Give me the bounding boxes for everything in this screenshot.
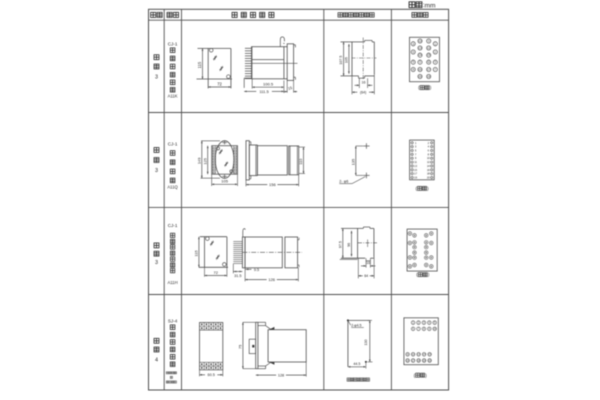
- svg-text:φ6: φ6: [344, 180, 349, 184]
- svg-text:111.5: 111.5: [259, 89, 269, 94]
- svg-text:9.5: 9.5: [254, 268, 259, 272]
- svg-text:3: 3: [155, 75, 158, 81]
- svg-text:97.5: 97.5: [338, 241, 342, 248]
- svg-text:149: 149: [196, 158, 201, 165]
- svg-text:128: 128: [278, 374, 284, 378]
- svg-text:96: 96: [347, 243, 351, 247]
- svg-text:156: 156: [269, 182, 276, 187]
- svg-text:72: 72: [217, 81, 222, 86]
- svg-text:31.5: 31.5: [234, 274, 241, 278]
- svg-text:3: 3: [155, 168, 158, 174]
- svg-text:A11K: A11K: [168, 94, 178, 99]
- svg-text:75: 75: [238, 345, 243, 349]
- svg-text:CJ-1: CJ-1: [168, 142, 178, 147]
- svg-text:SJ-4: SJ-4: [168, 319, 178, 324]
- svg-text:115: 115: [194, 249, 199, 256]
- svg-text:135: 135: [350, 159, 355, 166]
- svg-text:16: 16: [362, 80, 366, 84]
- svg-text:130: 130: [364, 339, 368, 345]
- svg-text:CJ-1: CJ-1: [168, 223, 178, 228]
- svg-text:(64): (64): [360, 91, 366, 95]
- svg-text:64: 64: [364, 274, 368, 278]
- svg-text:100.5: 100.5: [263, 82, 274, 87]
- svg-text:110: 110: [298, 158, 303, 165]
- svg-text:72: 72: [213, 270, 218, 275]
- svg-text:16: 16: [366, 261, 370, 265]
- svg-text:126: 126: [268, 277, 275, 282]
- svg-text:2-φ4.5: 2-φ4.5: [351, 324, 361, 328]
- svg-text:107.5: 107.5: [339, 56, 343, 65]
- svg-text:A11H: A11H: [168, 280, 178, 285]
- svg-text:A11Q: A11Q: [167, 184, 178, 189]
- svg-text:mm: mm: [425, 2, 436, 9]
- svg-text:3: 3: [155, 260, 158, 266]
- svg-text:CJ-1: CJ-1: [168, 42, 178, 47]
- svg-text:105: 105: [345, 57, 349, 63]
- svg-text:4: 4: [155, 357, 158, 363]
- svg-text:115: 115: [197, 61, 202, 68]
- svg-text:105: 105: [221, 179, 228, 184]
- svg-text:60.5: 60.5: [207, 373, 214, 377]
- svg-text:125: 125: [202, 158, 207, 165]
- svg-text:44.5: 44.5: [353, 362, 360, 366]
